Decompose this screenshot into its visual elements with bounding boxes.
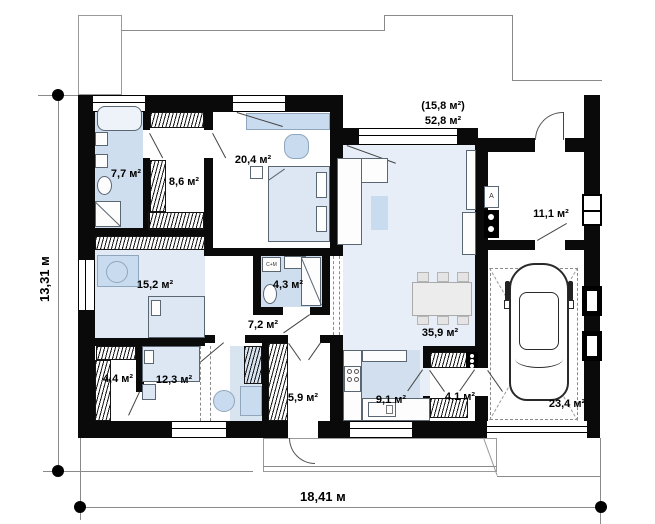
entrance-door-leaf (563, 112, 564, 140)
dashed-line (333, 256, 334, 335)
door-leaf-wardrobe (128, 392, 140, 416)
car-wheel (568, 281, 573, 301)
roof-eave-step (384, 15, 385, 31)
sink (95, 132, 108, 146)
closet-shelving-dressing-bottom (148, 212, 204, 230)
room-label-boiler: 11,1 м² (533, 208, 569, 220)
closet-shelving-cabinet (95, 236, 205, 250)
chair (106, 261, 128, 283)
car-wheel (505, 281, 510, 301)
room-label-wardrobe: 4,4 м² (103, 373, 133, 385)
wall-wing-top-right (565, 138, 600, 152)
wall-dressing-bedroom-lower (204, 158, 213, 256)
door-leaf-dressing (149, 133, 163, 158)
pillow (316, 206, 327, 232)
wall-boiler-garage-2 (565, 240, 600, 250)
dimension-tick (43, 471, 253, 472)
wall-cabinet-bottom (95, 338, 205, 346)
dining-chair (417, 316, 429, 325)
closet-shelving-entry (268, 343, 288, 421)
pillow (316, 172, 327, 198)
wall-boiler-garage-1 (488, 240, 535, 250)
burner (347, 377, 352, 382)
door-leaf-entry-2 (308, 342, 321, 360)
closet-shelving-wardrobe-left (95, 360, 111, 421)
sofa-corner-side (337, 158, 362, 245)
meter-dot (470, 354, 474, 358)
wall-bath2-bottom-1 (253, 307, 283, 315)
room-label-kitchen: 9,1 м² (376, 394, 406, 406)
room-label-bathroom-small: 4,3 м² (273, 279, 303, 291)
desk (246, 113, 330, 130)
desk (240, 386, 262, 416)
dining-chair (437, 272, 449, 282)
roof-eave-step (512, 15, 513, 81)
wall-hall-bottom-1 (205, 335, 215, 343)
wall-living-wing-upper (475, 138, 488, 368)
pillow (144, 350, 154, 364)
meter-dot (470, 364, 474, 368)
flue-dot (488, 226, 494, 232)
window-bedroom-second (172, 421, 226, 438)
roof-eave-line (122, 30, 384, 31)
dining-chair (457, 272, 469, 282)
wall-hall-bottom-2 (245, 335, 288, 343)
door-leaf-bath2 (283, 314, 310, 333)
room-label-bedroom2: 12,3 м² (156, 374, 192, 386)
dimension-dot (52, 89, 64, 101)
room-label-cabinet: 15,2 м² (137, 279, 173, 291)
entrance-door-arc (535, 112, 563, 140)
dimension-label-height: 13,31 м (37, 256, 52, 302)
window-bedroom-master (233, 95, 285, 112)
door-leaf-master (212, 133, 226, 158)
closet-shelving-mudroom-top (430, 352, 468, 368)
dimension-label-width: 18,41 м (300, 489, 346, 504)
roof-eave-line (384, 15, 512, 16)
dining-chair (437, 316, 449, 325)
chair (284, 134, 309, 159)
sink-drain (386, 405, 393, 414)
window-garage-1 (582, 286, 602, 316)
chair (213, 390, 235, 412)
floor-plan: С+М A (0, 0, 655, 524)
closet-shelving-dressing-left (150, 160, 166, 212)
door-leaf-boiler-garage (537, 223, 567, 241)
dimension-line-vertical (58, 95, 59, 471)
pillow (151, 300, 161, 316)
dining-chair (417, 272, 429, 282)
dining-chair (457, 316, 469, 325)
room-label-garage: 23,4 м² (549, 398, 585, 410)
room-label-master: 20,4 м² (235, 154, 271, 166)
dashed-line (210, 346, 211, 421)
dashed-line (339, 256, 340, 335)
wall-entry-kitchen (330, 335, 343, 438)
closet-shelving-dressing-top (150, 112, 204, 128)
driveway-line (497, 476, 601, 477)
washing-machine: С+М (262, 257, 281, 272)
fridge-counter (362, 350, 407, 362)
nightstand (142, 384, 156, 400)
tall-cabinet (466, 150, 476, 210)
toilet (97, 176, 112, 195)
closet-shelving-wardrobe-top (96, 346, 136, 360)
flue-dot (488, 214, 494, 220)
chimney-outline (78, 15, 122, 95)
boiler: A (484, 186, 499, 208)
terrace-label-line2: 52,8 м² (425, 115, 461, 127)
room-label-hallway: 7,2 м² (248, 319, 278, 331)
sink (95, 154, 108, 168)
entry-door-gap (288, 421, 318, 438)
bathtub (97, 106, 142, 131)
dining-table (412, 282, 472, 316)
car-windshield (515, 350, 563, 368)
terrace-label-line1: (15,8 м²) (421, 100, 465, 112)
room-label-mudroom: 4,1 м² (445, 391, 475, 403)
window-boiler-room (582, 194, 602, 226)
window-cabinet (78, 260, 95, 310)
porch-step-line (263, 466, 497, 467)
nightstand (250, 166, 263, 179)
window-living (359, 128, 457, 145)
room-label-living: 35,9 м² (422, 327, 458, 339)
closet-shelving-bedroom2 (244, 346, 262, 384)
room-label-bathroom-main: 7,7 м² (111, 168, 141, 180)
dimension-dot (74, 501, 86, 513)
car-mirror (504, 300, 510, 309)
tv-stand (462, 212, 476, 255)
wall-bath-dressing-upper (143, 112, 150, 130)
car-roof (519, 292, 559, 350)
dimension-dot (52, 465, 64, 477)
meter-dot (470, 359, 474, 363)
wall-bath2-bottom-2 (310, 307, 330, 315)
burner (354, 369, 359, 374)
garage-door (487, 421, 587, 438)
dashed-line (200, 346, 201, 421)
room-label-entry: 5,9 м² (288, 392, 318, 404)
window-kitchen (350, 421, 412, 438)
car-mirror (568, 300, 574, 309)
room-label-dressing: 8,6 м² (169, 176, 199, 188)
coffee-table (371, 196, 388, 230)
wall-master-bottom (205, 248, 343, 256)
wall-kitchen-mudroom-upper (423, 352, 430, 368)
dimension-dot (595, 501, 607, 513)
wall-dressing-bedroom-upper (204, 95, 213, 130)
door-leaf-entry-1 (288, 343, 301, 361)
roof-eave-line (512, 80, 602, 81)
dimension-line-horizontal (80, 507, 601, 508)
burner (347, 369, 352, 374)
burner (354, 377, 359, 382)
window-garage-2 (582, 331, 602, 361)
